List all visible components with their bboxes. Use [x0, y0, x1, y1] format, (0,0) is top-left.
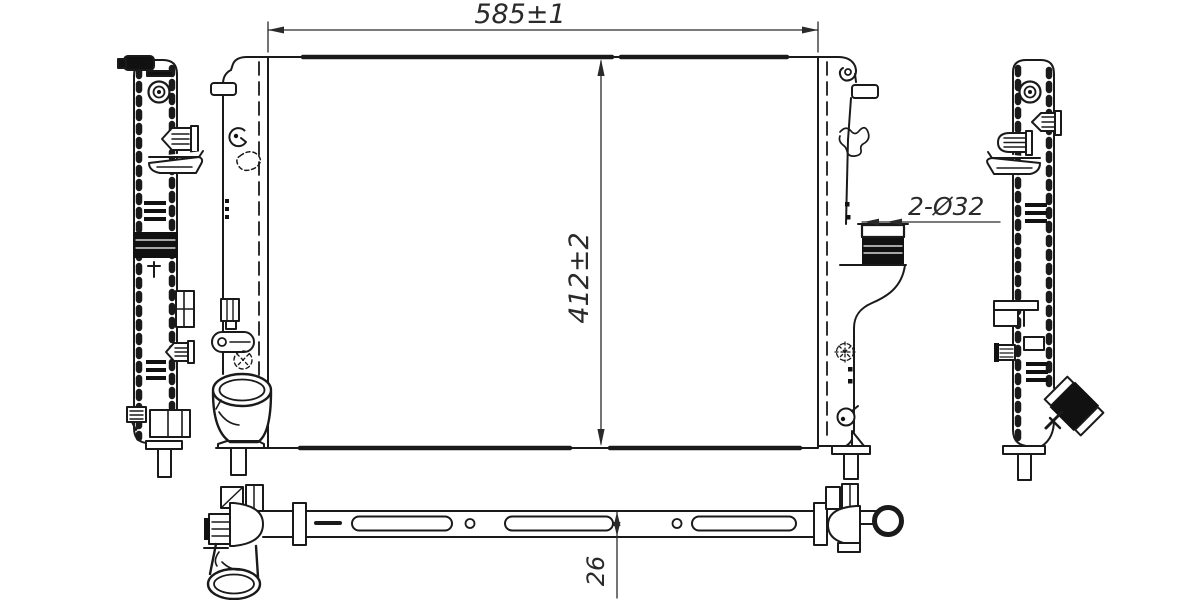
dimension-width-label: 585±1 — [474, 0, 565, 30]
left-view-rib-hatch-lower — [146, 360, 166, 380]
bottom-port-circle — [875, 508, 902, 535]
left-tank-dots-upper — [225, 199, 229, 219]
right-view-step-bracket — [1024, 337, 1044, 350]
dimension-thickness-label: 26 — [582, 556, 610, 587]
right-view-lower-clip — [994, 343, 1015, 362]
right-view-left-clip — [998, 131, 1032, 155]
right-view-rib-hatch-lower — [1026, 362, 1048, 382]
right-view-rib-hatch-upper — [1025, 203, 1047, 223]
dimension-ports-label: 2-Ø32 — [908, 192, 984, 221]
dimension-height-label: 412±2 — [564, 232, 595, 323]
front-view — [211, 57, 908, 479]
drawing-canvas: 585±1 412±2 2-Ø32 26 — [0, 0, 1200, 600]
radiator-core — [268, 57, 818, 448]
right-tank-top-pin — [852, 85, 878, 98]
left-tank-top-pin — [211, 83, 236, 95]
bottom-left-flange — [293, 503, 306, 545]
right-tank-bottom-pin — [844, 454, 858, 479]
left-view-side-bracket — [176, 291, 194, 327]
left-view-rib-hatch-upper — [144, 201, 166, 221]
bottom-band — [305, 511, 815, 537]
radiator-technical-drawing: 585±1 412±2 2-Ø32 26 — [0, 0, 1200, 600]
right-view-bottom-pin — [1018, 454, 1031, 480]
left-tank-bottom-pin — [231, 448, 246, 475]
